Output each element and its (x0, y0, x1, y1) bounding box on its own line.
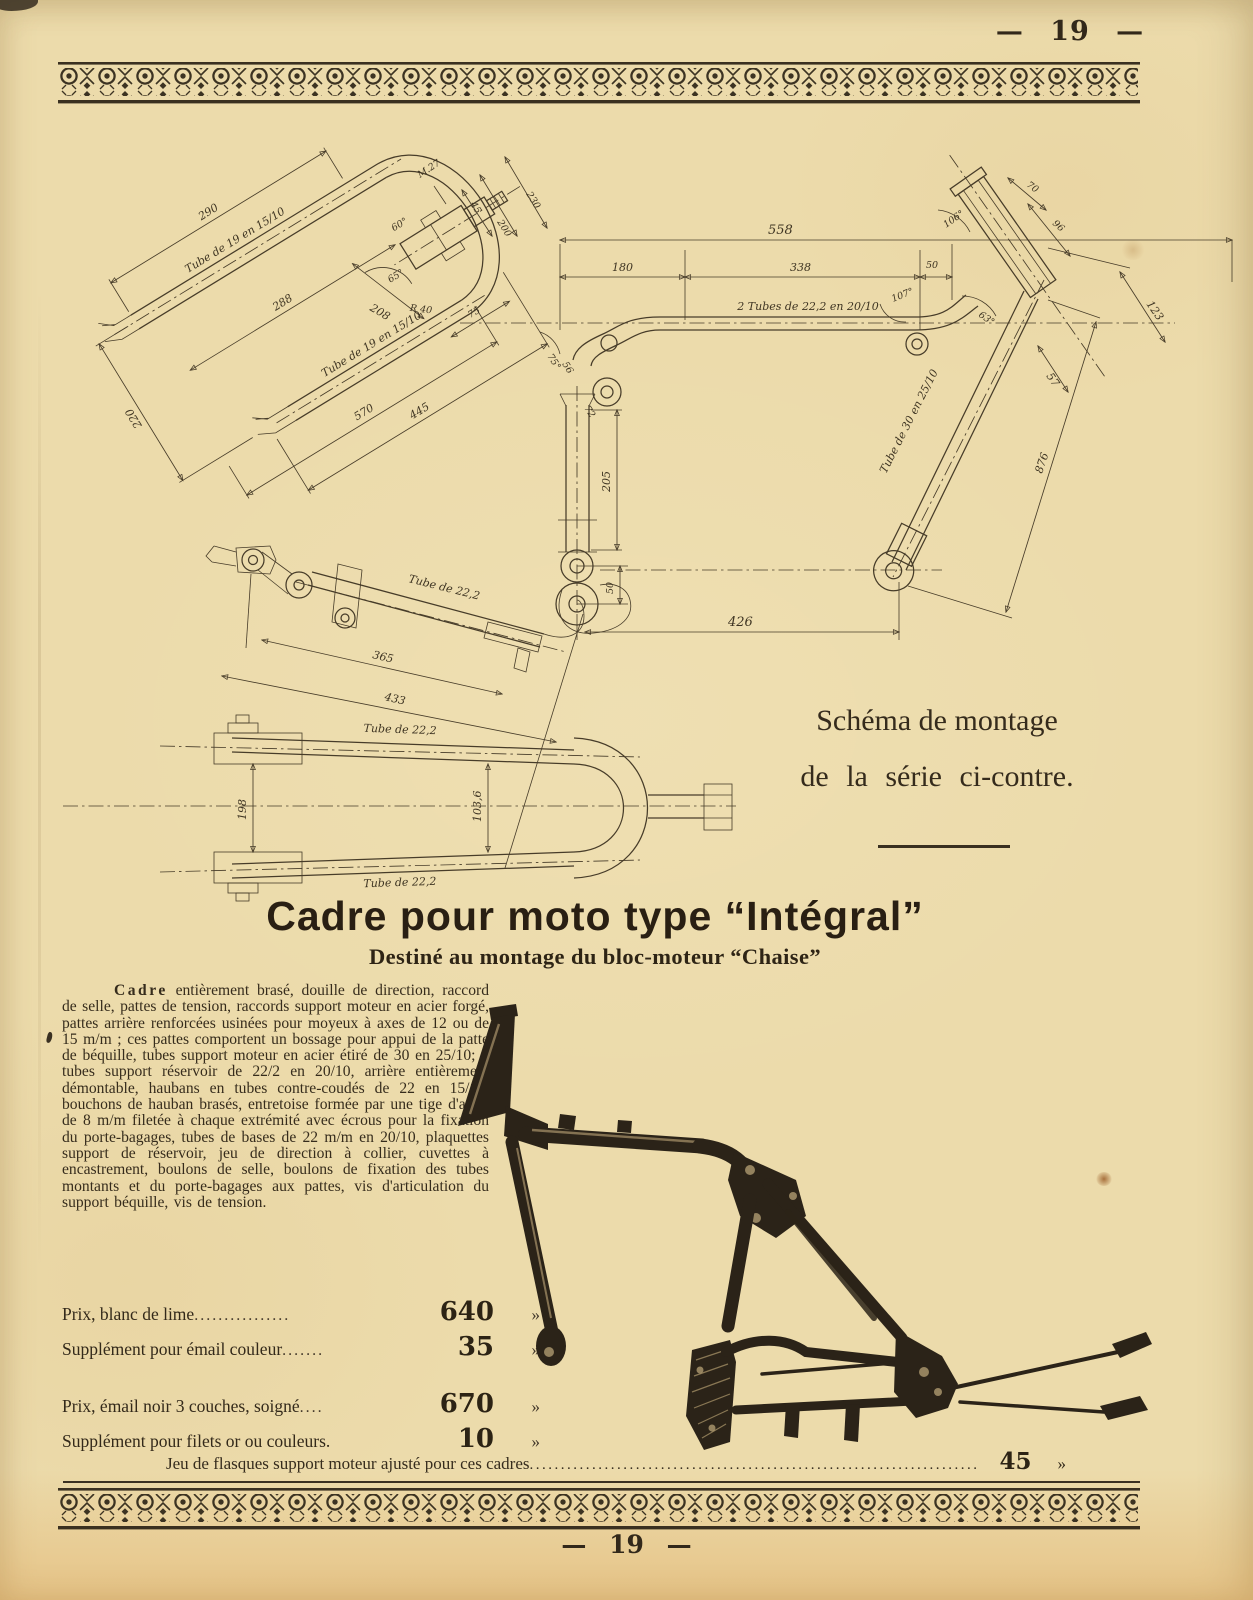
dot-leader: .... (300, 1399, 428, 1417)
dim-365: 365 (371, 648, 394, 665)
dim-205: 205 (600, 471, 613, 493)
dim-123: 123 (1144, 298, 1167, 323)
accessory-label: Jeu de flasques support moteur ajusté po… (166, 1454, 530, 1474)
rear-fork-side-view: 290 Tube de 19 en 15/10 288 208 570 445 … (53, 95, 565, 555)
rear-upper-stay (768, 1184, 902, 1338)
dim-103-6: 103,6 (471, 791, 484, 823)
dim-72: 72 (581, 404, 597, 420)
page-number-top: — 19 — (960, 16, 1180, 47)
description-text: entièrement brasé, douille de direction,… (62, 982, 489, 1211)
hanger-tab (844, 1404, 860, 1442)
frame-engraving-illustration (440, 985, 1200, 1470)
dim-57: 57 (1044, 370, 1063, 389)
tank-clip (617, 1120, 632, 1133)
accessory-value: 45 (985, 1448, 1031, 1475)
dot-leader: ................ (194, 1307, 428, 1325)
front-down-tube (512, 1142, 552, 1332)
tension-rod-lower (960, 1402, 1104, 1412)
note-underline-rule (878, 845, 1010, 848)
dim-70: 70 (1024, 180, 1040, 196)
catalog-page: — 19 — (0, 0, 1253, 1600)
dim-56: 56 (559, 360, 575, 376)
tubes-222-label: 2 Tubes de 22,2 en 20/10 (736, 300, 878, 313)
ornamental-border-bottom (58, 1488, 1140, 1532)
seat-tube (728, 1200, 750, 1326)
dim-198: 198 (236, 799, 249, 820)
page-title: Cadre pour moto type “Intégral” (180, 893, 1010, 940)
tension-rod-upper (952, 1352, 1118, 1388)
tension-clevis-lower (1100, 1396, 1148, 1420)
dim-208: 208 (367, 301, 393, 323)
main-frame-side-view: Tube de 30 en 25/10 (460, 144, 1175, 633)
dim-75: 75 (466, 305, 482, 321)
lower-stay-view: Tube de 22,2 365 433 (206, 546, 584, 868)
price-label: Prix, blanc de lime (62, 1304, 194, 1325)
dot-leader: ........................................… (530, 1457, 986, 1474)
angle-107: 107° (890, 286, 915, 305)
rear-stays-top-view: 198 103,6 Tube de 22,2 Tube de 22,2 (63, 715, 736, 901)
schema-note-line1: Schéma de montage (742, 693, 1132, 749)
page-number-bottom: — 19 — (0, 1530, 1253, 1559)
tube-30-label: Tube de 30 en 25/10 (877, 367, 941, 475)
bottom-thin-rule (63, 1481, 1140, 1483)
dim-M27: M.27 (415, 157, 443, 181)
dim-50: 50 (926, 260, 938, 271)
dim-433: 433 (382, 690, 406, 708)
scan-corner-smudge (0, 0, 38, 11)
tube-222-top-label: Tube de 22,2 (363, 722, 436, 738)
dim-288: 288 (269, 291, 295, 314)
angle-65: 65° (386, 267, 406, 285)
dim-290: 290 (195, 201, 221, 224)
page-subtitle: Destiné au montage du bloc-moteur “Chais… (180, 944, 1010, 970)
down-tube-end-lug (536, 1326, 566, 1366)
hanger-tab (784, 1404, 800, 1438)
price-label: Prix, émail noir 3 couches, soigné (62, 1396, 300, 1417)
schema-note: Schéma de montage de la série ci-contre. (742, 693, 1132, 805)
ink-fleck (46, 1032, 54, 1044)
dim-876: 876 (1032, 451, 1051, 475)
dim-338: 338 (790, 261, 811, 274)
dim-570: 570 (352, 401, 377, 423)
angle-60: 60° (390, 216, 410, 234)
tube-19-label-lower: Tube de 19 en 15/10 (319, 309, 424, 380)
dim-50-pivot: 50 (605, 582, 616, 594)
dim-426: 426 (727, 615, 753, 630)
chainstay (726, 1341, 916, 1364)
description-lead-word: Cadre (114, 982, 168, 999)
tube-222-bottom-label: Tube de 22,2 (363, 875, 436, 891)
angle-75: 75° (544, 352, 562, 372)
dim-558: 558 (768, 223, 793, 238)
price-label: Supplément pour émail couleur (62, 1339, 282, 1360)
accessory-price-line: Jeu de flasques support moteur ajusté po… (166, 1448, 1066, 1475)
schema-note-line2: de la série ci-contre. (742, 749, 1132, 805)
dot-leader: ....... (282, 1342, 428, 1360)
tension-clevis-upper (1112, 1332, 1152, 1358)
tank-clip (558, 1114, 576, 1130)
dim-220: 220 (123, 406, 146, 432)
description-paragraph: Cadre entièrement brasé, douille de dire… (62, 983, 489, 1211)
dim-96: 96 (1050, 218, 1066, 234)
accessory-unit: » (1032, 1454, 1067, 1474)
dim-180: 180 (612, 261, 633, 274)
tube-222-stay-label: Tube de 22,2 (407, 572, 481, 602)
dim-445: 445 (406, 400, 432, 423)
rear-inner-stay (788, 1212, 874, 1318)
